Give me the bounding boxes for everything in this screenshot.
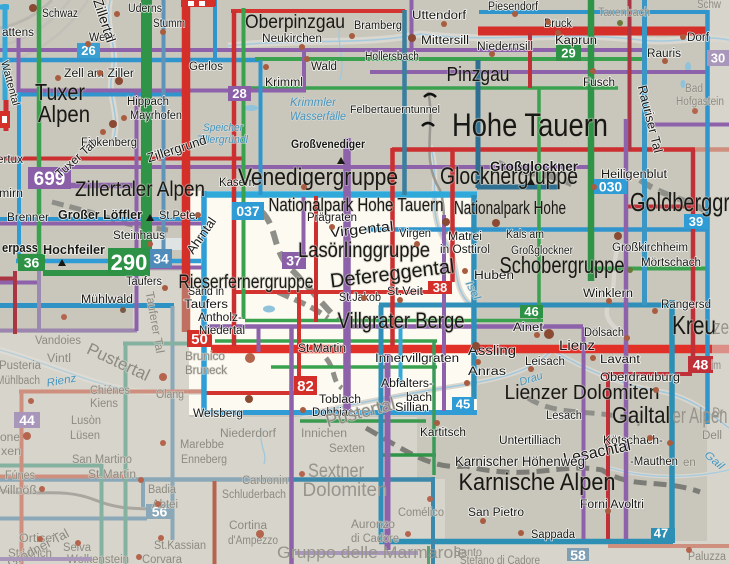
svg-text:Alpen: Alpen — [38, 101, 90, 127]
svg-text:Taufers: Taufers — [184, 299, 228, 311]
svg-text:38: 38 — [433, 280, 447, 295]
svg-text:Marebbe: Marebbe — [180, 439, 224, 451]
svg-text:Mühlbach: Mühlbach — [0, 375, 40, 387]
svg-text:ertux: ertux — [0, 154, 23, 166]
svg-text:Mörtschach: Mörtschach — [641, 257, 701, 269]
svg-text:in Osttirol: in Osttirol — [440, 244, 490, 256]
svg-text:58: 58 — [570, 547, 586, 563]
svg-text:47: 47 — [654, 526, 668, 541]
svg-text:Auronzo: Auronzo — [351, 519, 395, 531]
svg-text:Zillertaler Alpen: Zillertaler Alpen — [75, 178, 205, 201]
svg-text:attens: attens — [2, 27, 34, 39]
svg-text:Uttendorf: Uttendorf — [412, 10, 467, 22]
svg-text:Schobergruppe: Schobergruppe — [500, 252, 625, 278]
svg-text:Sexten: Sexten — [329, 443, 365, 455]
svg-text:Niedernsill: Niedernsill — [477, 41, 533, 53]
svg-text:44: 44 — [19, 412, 35, 428]
svg-text:Oberpinzgau: Oberpinzgau — [245, 12, 345, 33]
svg-text:Abfalters-: Abfalters- — [381, 378, 433, 390]
svg-text:Lüsen: Lüsen — [70, 430, 100, 442]
svg-text:82: 82 — [297, 378, 314, 395]
svg-text:Venedigergruppe: Venedigergruppe — [238, 164, 398, 191]
svg-text:San Pietro: San Pietro — [468, 507, 524, 519]
svg-text:Villnöß: Villnöß — [0, 485, 37, 497]
svg-text:Welsberg: Welsberg — [193, 408, 243, 420]
svg-text:Corvara: Corvara — [142, 554, 183, 564]
svg-text:Ainet: Ainet — [513, 322, 544, 334]
svg-text:Uderns: Uderns — [128, 3, 162, 15]
svg-text:mirn: mirn — [0, 188, 23, 200]
svg-text:Enneberg: Enneberg — [181, 454, 227, 466]
svg-text:Brenner: Brenner — [7, 212, 49, 224]
svg-text:Bruneck: Bruneck — [185, 365, 227, 377]
svg-text:Stefano di Cadore: Stefano di Cadore — [460, 555, 540, 564]
svg-text:-Mauthen: -Mauthen — [630, 456, 678, 468]
svg-text:Paluzza: Paluzza — [688, 551, 727, 563]
svg-text:one: one — [0, 432, 20, 444]
svg-text:d'Ampezzo: d'Ampezzo — [228, 535, 278, 547]
svg-text:Hochfeiler: Hochfeiler — [43, 242, 105, 257]
svg-text:037: 037 — [236, 203, 260, 219]
svg-text:28: 28 — [232, 86, 246, 101]
svg-text:Dell: Dell — [702, 430, 722, 442]
svg-text:Fusch: Fusch — [583, 77, 615, 89]
svg-text:Vandoies: Vandoies — [35, 335, 81, 347]
svg-text:Heiligenblut: Heiligenblut — [601, 169, 668, 181]
svg-text:Karnische Alpen: Karnische Alpen — [459, 469, 616, 496]
svg-text:Innichen: Innichen — [301, 428, 347, 440]
svg-text:Chiénes: Chiénes — [90, 385, 130, 397]
svg-text:Untertilliach: Untertilliach — [499, 435, 561, 447]
svg-text:Kartitsch: Kartitsch — [420, 427, 466, 439]
svg-text:Schluderbach: Schluderbach — [222, 489, 286, 501]
svg-text:Niedertal: Niedertal — [199, 325, 245, 337]
svg-text:Nationalpark Hohe: Nationalpark Hohe — [454, 198, 566, 218]
svg-text:Hollersbach: Hollersbach — [365, 51, 419, 63]
svg-text:36: 36 — [24, 255, 40, 271]
svg-text:San Martino: San Martino — [72, 454, 132, 466]
svg-text:Schw: Schw — [697, 0, 722, 11]
svg-text:Niederdorf: Niederdorf — [220, 428, 277, 440]
svg-text:erpass: erpass — [2, 240, 38, 255]
svg-text:Forni Avoltri: Forni Avoltri — [580, 499, 644, 511]
svg-text:34: 34 — [153, 251, 169, 267]
svg-text:Nationalpark Hohe Tauern: Nationalpark Hohe Tauern — [269, 195, 444, 215]
svg-text:Pusteria: Pusteria — [0, 360, 42, 372]
svg-text:Lusòn: Lusòn — [71, 415, 101, 427]
svg-text:Hofgastein: Hofgastein — [676, 96, 724, 108]
svg-text:Speicher: Speicher — [203, 122, 244, 134]
svg-text:Taufers: Taufers — [126, 276, 162, 288]
svg-text:Goldberggr: Goldberggr — [630, 187, 729, 217]
svg-text:Bramberg: Bramberg — [354, 20, 402, 32]
svg-text:30: 30 — [711, 51, 725, 66]
svg-text:Kreu: Kreu — [672, 310, 716, 340]
svg-text:Lavant: Lavant — [600, 354, 641, 366]
svg-text:Schwaz: Schwaz — [42, 8, 78, 20]
svg-text:Gruppo delle Marmarole: Gruppo delle Marmarole — [277, 543, 467, 562]
svg-text:Wald: Wald — [311, 61, 337, 73]
svg-text:Carbonin: Carbonin — [242, 475, 288, 487]
svg-text:Hippach: Hippach — [127, 96, 169, 108]
svg-text:Mühlwald: Mühlwald — [81, 294, 133, 306]
svg-text:er Alpen: er Alpen — [673, 403, 728, 428]
svg-text:xen: xen — [1, 446, 21, 458]
svg-text:Steinhaus: Steinhaus — [113, 230, 165, 242]
svg-text:Vintl: Vintl — [47, 353, 71, 365]
svg-text:Großvenediger: Großvenediger — [291, 137, 365, 151]
svg-text:Felbertauerntunnel: Felbertauerntunnel — [350, 104, 440, 116]
svg-text:St.Martin: St.Martin — [88, 469, 136, 481]
svg-text:Anras: Anras — [468, 366, 506, 378]
svg-text:Dolomiten: Dolomiten — [303, 480, 388, 501]
svg-text:Krimmler: Krimmler — [290, 95, 337, 109]
svg-text:St.Jakob: St.Jakob — [339, 292, 381, 304]
svg-text:Comélico: Comélico — [398, 507, 444, 519]
svg-text:Sextner: Sextner — [308, 461, 365, 482]
svg-text:Sappada: Sappada — [531, 529, 576, 541]
svg-text:im: im — [711, 360, 721, 372]
svg-text:Stumm: Stumm — [153, 18, 185, 30]
svg-text:Brunico: Brunico — [185, 351, 225, 363]
svg-text:Badia: Badia — [148, 484, 177, 496]
svg-text:Olang: Olang — [156, 389, 184, 401]
svg-text:St.Peter: St.Peter — [159, 210, 199, 222]
svg-text:Großer Löffler: Großer Löffler — [58, 207, 142, 222]
svg-text:Mittersill: Mittersill — [421, 35, 469, 47]
svg-text:Kaprun: Kaprun — [555, 35, 597, 47]
svg-text:Kals am: Kals am — [506, 229, 544, 241]
svg-text:48: 48 — [693, 357, 709, 373]
svg-text:en: en — [683, 457, 696, 469]
svg-text:Hohe Tauern: Hohe Tauern — [452, 107, 608, 143]
svg-text:Karnischer Höhenweg: Karnischer Höhenweg — [455, 454, 585, 469]
svg-text:Rieserfernergruppe: Rieserfernergruppe — [179, 272, 314, 293]
svg-text:Lienz: Lienz — [559, 337, 595, 353]
svg-text:Gerlos: Gerlos — [189, 61, 223, 73]
svg-text:Lasörlinggruppe: Lasörlinggruppe — [298, 239, 430, 262]
svg-text:290: 290 — [111, 250, 148, 275]
svg-text:Piesendorf: Piesendorf — [488, 1, 539, 13]
svg-text:Bad: Bad — [685, 83, 703, 95]
svg-text:Cortina: Cortina — [229, 520, 268, 532]
svg-text:Fúnes: Fúnes — [5, 470, 35, 482]
svg-text:Kiens: Kiens — [90, 398, 118, 410]
svg-text:46: 46 — [524, 304, 538, 319]
svg-text:ze: ze — [713, 317, 729, 339]
svg-text:Krimml: Krimml — [265, 77, 303, 89]
svg-text:Mayrhofen: Mayrhofen — [130, 110, 182, 122]
svg-text:Wasserfälle: Wasserfälle — [290, 109, 346, 123]
svg-text:Taxenbach: Taxenbach — [598, 7, 650, 19]
svg-text:St.Veit: St.Veit — [387, 286, 424, 298]
svg-text:Antholz-: Antholz- — [198, 312, 242, 324]
svg-text:Innervillgraten: Innervillgraten — [375, 353, 459, 365]
svg-text:Gailtal: Gailtal — [612, 402, 670, 428]
svg-text:29: 29 — [561, 46, 575, 61]
svg-text:St.Kassian: St.Kassian — [154, 540, 206, 552]
svg-text:Neukirchen: Neukirchen — [262, 33, 322, 45]
svg-text:St.Martin: St.Martin — [298, 343, 346, 355]
svg-text:Lesach: Lesach — [546, 410, 582, 422]
svg-text:Großglockner: Großglockner — [490, 158, 579, 174]
svg-text:Matrei: Matrei — [448, 231, 482, 243]
svg-text:Pinzgau: Pinzgau — [447, 64, 510, 86]
svg-text:Sillian: Sillian — [395, 402, 429, 414]
svg-text:45: 45 — [456, 397, 470, 412]
svg-text:Villgrater Berge: Villgrater Berge — [338, 308, 465, 333]
svg-text:Dorf: Dorf — [687, 32, 710, 44]
